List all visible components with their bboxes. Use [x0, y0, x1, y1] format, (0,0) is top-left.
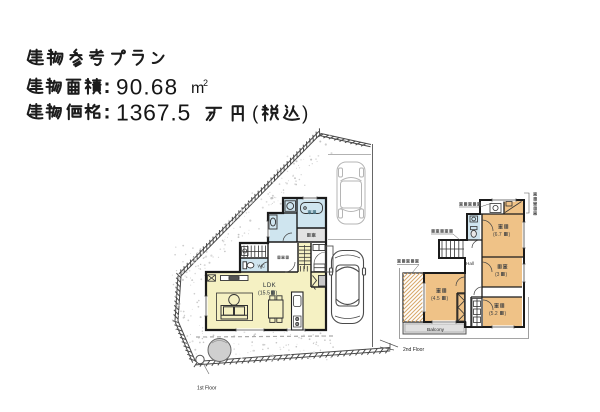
svg-text:1367.5: 1367.5	[116, 100, 191, 126]
svg-text:Hall: Hall	[466, 261, 474, 266]
svg-text:(5.2: (5.2	[489, 311, 498, 317]
svg-text:(6.7: (6.7	[493, 232, 502, 238]
svg-text:LDK: LDK	[263, 283, 276, 289]
svg-text:2: 2	[203, 78, 208, 88]
svg-text:(15.5: (15.5	[258, 291, 270, 297]
svg-text:2nd Floor: 2nd Floor	[403, 347, 424, 353]
svg-text:(: (	[252, 104, 259, 125]
svg-text:(4.5: (4.5	[431, 296, 440, 302]
svg-text:90.68: 90.68	[116, 75, 178, 100]
svg-text:): )	[276, 291, 278, 297]
svg-text:1st Floor: 1st Floor	[197, 386, 217, 392]
svg-text:(3: (3	[495, 272, 500, 278]
svg-text:Balcony: Balcony	[427, 327, 445, 333]
svg-text:): )	[302, 104, 308, 125]
